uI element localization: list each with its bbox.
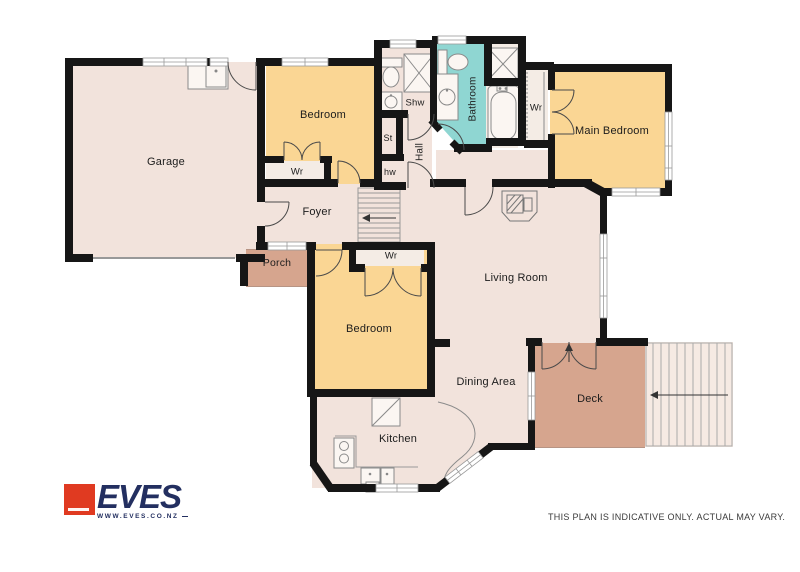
- room-label-kitchen: Kitchen: [379, 433, 417, 445]
- room-label-bedroom-top: Bedroom: [300, 109, 346, 121]
- eves-logo-url: WWW.EVES.CO.NZ: [97, 513, 179, 520]
- room-label-living-room: Living Room: [484, 272, 547, 284]
- eves-logo-rule: [182, 516, 188, 517]
- room-label-shw: Shw: [405, 98, 424, 109]
- room-label-bedroom-bottom: Bedroom: [346, 323, 392, 335]
- eves-logo-text: EVES: [97, 484, 188, 510]
- room-label-hw: hw: [384, 167, 396, 177]
- eves-logo-mark-icon: [64, 484, 95, 515]
- room-label-dining-area: Dining Area: [456, 376, 515, 388]
- room-label-bathroom: Bathroom: [468, 77, 479, 122]
- disclaimer-text: THIS PLAN IS INDICATIVE ONLY. ACTUAL MAY…: [548, 512, 785, 522]
- room-label-garage: Garage: [147, 156, 185, 168]
- room-label-hall: Hall: [415, 143, 426, 161]
- room-label-foyer: Foyer: [302, 206, 331, 218]
- room-label-deck: Deck: [577, 393, 603, 405]
- eves-logo-url-row: WWW.EVES.CO.NZ: [97, 513, 188, 520]
- room-label-wr-main: Wr: [530, 103, 542, 114]
- floor-plan-page: Garage Bedroom Wr Shw St hw Hall Bathroo…: [0, 0, 800, 572]
- room-label-main-bedroom: Main Bedroom: [575, 125, 649, 137]
- eves-logo: EVES WWW.EVES.CO.NZ: [64, 484, 188, 520]
- room-label-porch: Porch: [263, 257, 291, 269]
- room-label-st: St: [384, 133, 393, 143]
- eves-logo-body: EVES WWW.EVES.CO.NZ: [97, 484, 188, 520]
- room-label-wr-bottom: Wr: [385, 251, 397, 262]
- eves-logo-mark-bar: [68, 508, 89, 511]
- room-label-wr-top: Wr: [291, 167, 303, 178]
